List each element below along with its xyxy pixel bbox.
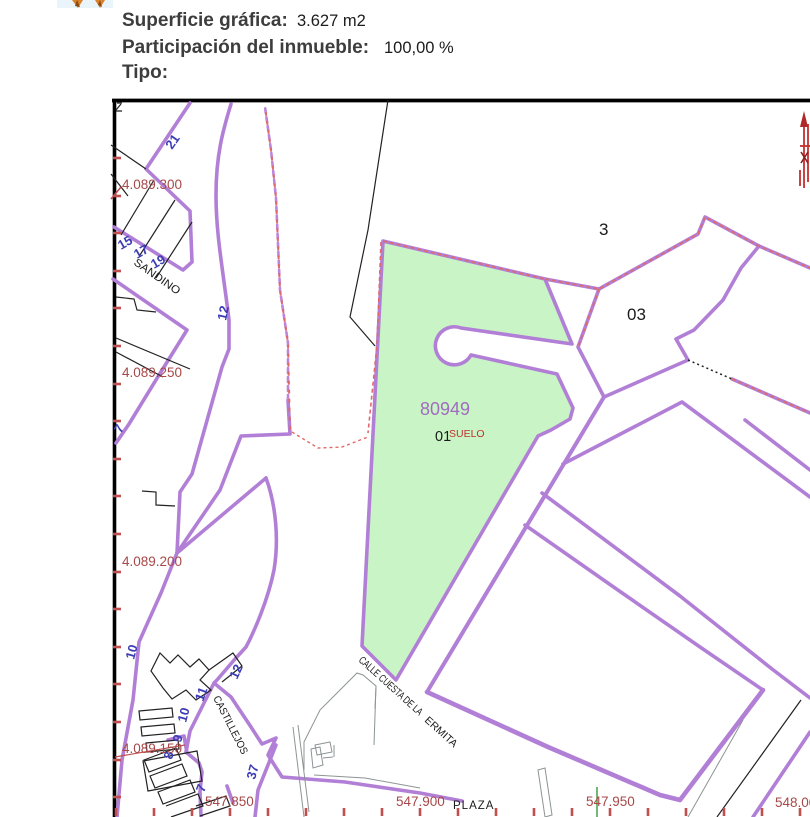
svg-text:21: 21 — [162, 131, 183, 151]
svg-text:547.850: 547.850 — [205, 794, 254, 809]
svg-text:548.00: 548.00 — [775, 795, 810, 810]
svg-text:37: 37 — [243, 763, 261, 781]
svg-text:80949: 80949 — [420, 399, 470, 419]
svg-text:ERMITA: ERMITA — [422, 714, 460, 750]
svg-text:547.950: 547.950 — [586, 794, 635, 809]
svg-text:03: 03 — [627, 305, 646, 324]
svg-text:10: 10 — [174, 706, 192, 724]
svg-text:12: 12 — [214, 304, 232, 321]
svg-text:PLAZA: PLAZA — [453, 800, 494, 812]
svg-text:4.089.200: 4.089.200 — [122, 554, 182, 569]
svg-text:4.089.300: 4.089.300 — [122, 177, 182, 192]
svg-text:3: 3 — [599, 220, 608, 239]
svg-text:SUELO: SUELO — [449, 428, 485, 440]
svg-text:547.900: 547.900 — [396, 794, 445, 809]
svg-text:4.089.250: 4.089.250 — [122, 365, 182, 380]
svg-text:CASTILLEJOS: CASTILLEJOS — [210, 694, 250, 756]
